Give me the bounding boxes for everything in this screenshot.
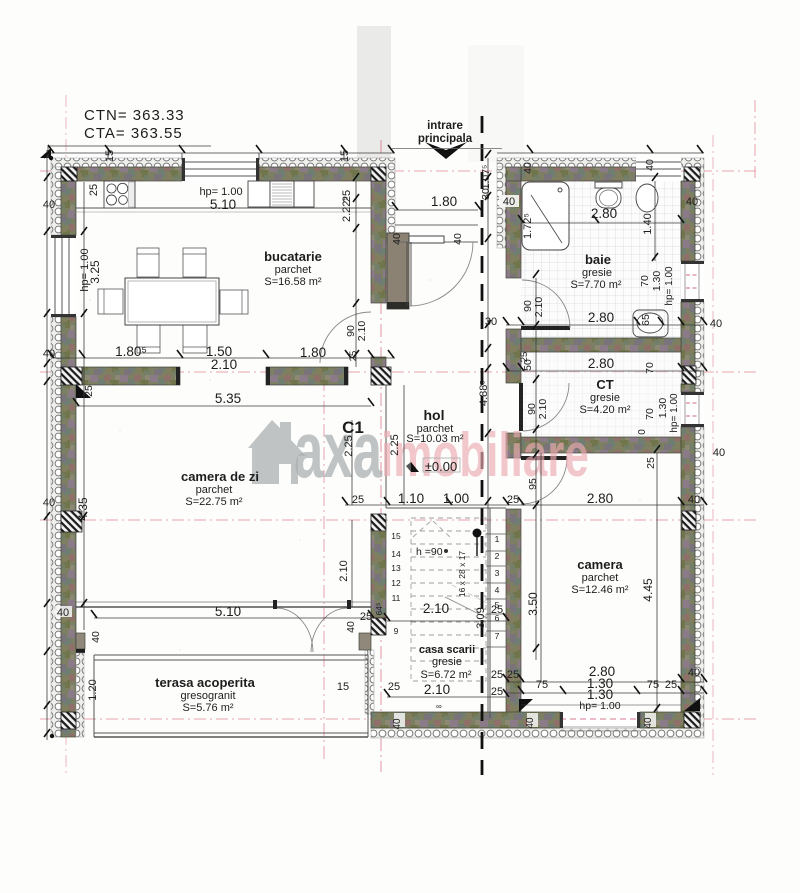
svg-text:25: 25 [507,494,519,506]
svg-text:1.30: 1.30 [657,398,669,419]
svg-text:30: 30 [480,188,492,200]
svg-text:baie: baie [585,252,611,267]
svg-text:40: 40 [43,199,55,211]
svg-text:40: 40 [57,607,69,619]
svg-text:11: 11 [392,593,401,603]
svg-text:4.45: 4.45 [641,578,655,602]
svg-text:25: 25 [388,681,400,693]
svg-text:15: 15 [339,150,351,162]
svg-text:1.20: 1.20 [87,679,99,700]
svg-text:15: 15 [337,681,349,693]
svg-text:4.88⁵: 4.88⁵ [478,380,490,406]
svg-text:1.72⁵: 1.72⁵ [522,213,534,239]
svg-text:25: 25 [507,669,519,681]
svg-text:2.80: 2.80 [588,310,614,325]
svg-text:S=12.46 m²: S=12.46 m² [571,584,629,596]
svg-text:S=6.72 m²: S=6.72 m² [420,669,471,681]
svg-text:13: 13 [391,563,401,573]
svg-text:2.10: 2.10 [533,297,545,318]
svg-text:3: 3 [495,568,500,578]
svg-text:S=22.75 m²: S=22.75 m² [185,496,243,508]
svg-text:75: 75 [647,679,659,691]
svg-text:75: 75 [536,679,548,691]
svg-text:2.80: 2.80 [588,356,614,371]
svg-text:40: 40 [644,159,656,171]
svg-text:40: 40 [710,318,722,330]
svg-text:2.25: 2.25 [389,434,401,455]
svg-text:95: 95 [527,478,539,490]
svg-text:S=4.20 m²: S=4.20 m² [579,404,630,416]
svg-text:parchet: parchet [275,264,312,276]
svg-text:40: 40 [643,717,654,729]
svg-text:1.10: 1.10 [398,491,424,506]
svg-text:CT: CT [596,377,613,392]
svg-text:h =90: h =90 [416,546,443,558]
svg-text:hol: hol [424,407,445,423]
svg-text:2.80: 2.80 [587,491,613,506]
svg-text:∞: ∞ [436,702,442,711]
svg-text:2.10: 2.10 [338,560,350,581]
svg-text:40: 40 [345,621,357,633]
svg-text:casa scarii: casa scarii [419,644,475,656]
svg-text:4.35: 4.35 [76,497,90,521]
svg-text:40: 40 [686,196,698,208]
svg-text:40: 40 [452,233,464,245]
svg-text:25: 25 [83,385,95,397]
svg-text:25: 25 [348,351,359,362]
svg-text:2.22⁵: 2.22⁵ [341,196,353,222]
svg-text:2.10: 2.10 [424,682,450,697]
svg-text:axa: axa [294,406,383,495]
svg-text:9: 9 [394,626,399,636]
svg-text:1.80: 1.80 [300,345,326,360]
svg-text:C1: C1 [342,418,364,437]
svg-text:2.10: 2.10 [356,321,368,342]
svg-text:40: 40 [391,233,403,245]
svg-text:70: 70 [644,362,656,374]
svg-text:imobiliare: imobiliare [381,421,589,490]
svg-text:3.09: 3.09 [475,607,487,628]
svg-text:25: 25 [491,669,503,681]
svg-text:16 x 28 x 17: 16 x 28 x 17 [457,551,467,598]
svg-text:64⁵: 64⁵ [374,603,384,616]
svg-text:40: 40 [688,667,700,679]
svg-text:hp= 1.00: hp= 1.00 [579,700,620,712]
svg-text:camera: camera [577,557,623,572]
svg-text:S=10.03 m²: S=10.03 m² [406,433,464,445]
svg-text:40: 40 [522,162,534,174]
svg-text:40: 40 [43,497,55,509]
svg-text:gresie: gresie [582,267,612,279]
svg-text:40: 40 [525,717,536,729]
svg-text:terasa acoperita: terasa acoperita [155,675,255,690]
svg-text:4: 4 [495,585,500,595]
svg-text:40: 40 [43,348,55,360]
svg-text:15: 15 [104,150,116,162]
svg-text:25: 25 [352,494,364,506]
svg-text:65: 65 [640,314,652,326]
svg-text:5.35: 5.35 [215,391,241,406]
svg-text:bucatarie: bucatarie [264,249,322,264]
svg-text:25: 25 [491,604,503,616]
svg-text:2.10: 2.10 [423,601,449,616]
svg-text:40: 40 [688,494,700,506]
svg-text:hp= 1.00: hp= 1.00 [664,266,675,306]
svg-text:3.25: 3.25 [88,260,102,284]
svg-text:gresie: gresie [432,656,462,668]
svg-text:S=7.70 m²: S=7.70 m² [570,279,621,291]
svg-text:CTN= 363.33: CTN= 363.33 [84,107,185,124]
svg-text:1.80⁵: 1.80⁵ [115,344,147,359]
svg-text:hp= 1.00: hp= 1.00 [669,393,680,433]
svg-text:25: 25 [665,679,677,691]
svg-text:14: 14 [391,549,401,559]
svg-text:2.25: 2.25 [343,435,355,456]
svg-text:1.80: 1.80 [431,194,457,209]
svg-text:2.10: 2.10 [537,399,549,420]
svg-text:1.07⁵: 1.07⁵ [480,165,492,190]
svg-text:25: 25 [519,352,530,363]
svg-text:15: 15 [391,531,401,541]
svg-text:7: 7 [495,631,500,641]
svg-text:12: 12 [391,578,401,588]
svg-text:40: 40 [713,447,725,459]
svg-text:70: 70 [644,408,656,420]
svg-text:gresogranit: gresogranit [180,690,235,702]
svg-text:25: 25 [491,686,503,698]
svg-text:5.10: 5.10 [210,197,236,212]
svg-text:70: 70 [639,275,651,287]
svg-text:40: 40 [392,718,403,730]
svg-text:S=5.76 m²: S=5.76 m² [182,702,233,714]
svg-text:25: 25 [88,184,100,196]
svg-text:gresie: gresie [590,392,620,404]
svg-text:0: 0 [637,429,648,435]
svg-text:1.40: 1.40 [642,213,654,234]
svg-text:2.10: 2.10 [211,357,237,372]
svg-text:40: 40 [503,196,515,208]
svg-text:intrare: intrare [427,120,463,132]
svg-text:30: 30 [485,316,497,328]
svg-text:40: 40 [90,631,102,643]
svg-text:parchet: parchet [196,484,233,496]
svg-text:3.50: 3.50 [526,592,540,616]
svg-text:25: 25 [360,611,372,623]
svg-text:1.30: 1.30 [651,271,663,292]
svg-text:CTA= 363.55: CTA= 363.55 [84,125,183,142]
svg-text:5.10: 5.10 [215,604,241,619]
svg-text:1: 1 [495,534,500,544]
svg-text:2: 2 [495,551,500,561]
svg-text:parchet: parchet [582,572,619,584]
svg-text:camera de zi: camera de zi [181,469,259,484]
svg-text:S=16.58 m²: S=16.58 m² [264,276,322,288]
svg-text:1.00: 1.00 [443,491,469,506]
svg-text:2.80: 2.80 [591,206,617,221]
svg-text:25: 25 [645,457,657,469]
